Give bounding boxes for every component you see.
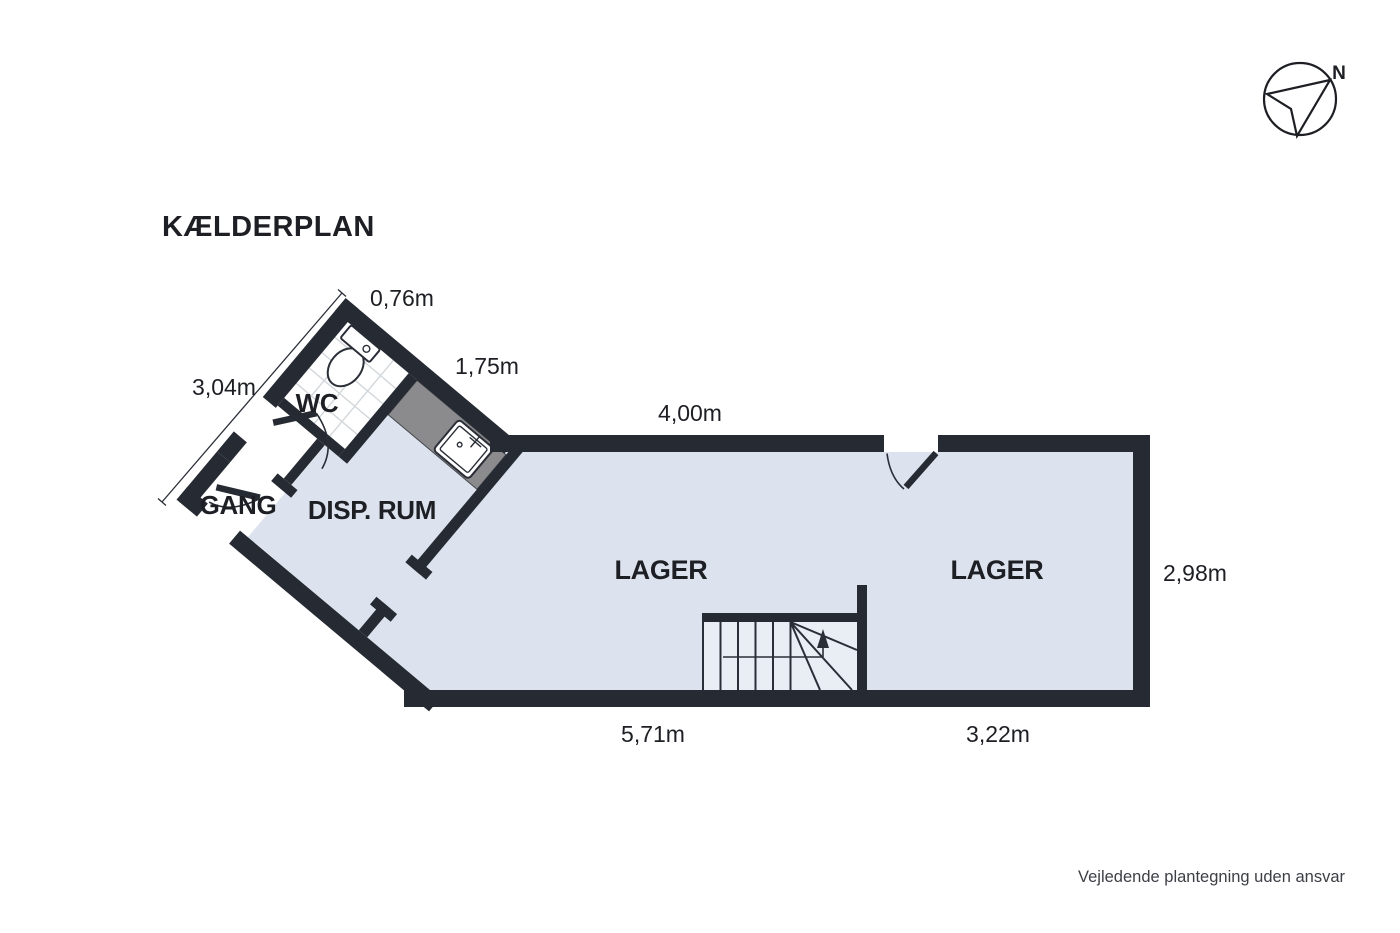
dim-label-304: 3,04m [192, 374, 256, 400]
room-label-wc: WC [296, 388, 339, 418]
room-label-gang: GANG [200, 490, 277, 520]
page-title: KÆLDERPLAN [162, 211, 375, 243]
dim-label-175: 1,75m [455, 353, 519, 379]
room-label-lager-right: LAGER [950, 555, 1043, 585]
dim-label-322: 3,22m [966, 721, 1030, 747]
dim-label-400: 4,00m [658, 400, 722, 426]
room-label-disp-rum: DISP. RUM [308, 495, 436, 525]
stair-top-wall [702, 613, 857, 622]
wall-top-right-segment [938, 435, 1150, 452]
footer-disclaimer: Vejledende plantegning uden ansvar [1078, 868, 1345, 886]
stairwell-floor [703, 622, 857, 690]
room-label-lager-left: LAGER [614, 555, 707, 585]
compass-north-label: N [1332, 63, 1346, 84]
wall-bottom [404, 690, 1150, 707]
dim-label-298: 2,98m [1163, 560, 1227, 586]
wall-top-left-segment [490, 435, 884, 452]
floorplan-page: N KÆLDERPLAN [0, 0, 1400, 933]
floorplan-canvas: N KÆLDERPLAN [0, 0, 1400, 933]
compass: N [1264, 63, 1346, 136]
dim-label-076: 0,76m [370, 285, 434, 311]
stair-side-wall [857, 585, 867, 690]
dim-label-571: 5,71m [621, 721, 685, 747]
wall-right [1133, 435, 1150, 707]
